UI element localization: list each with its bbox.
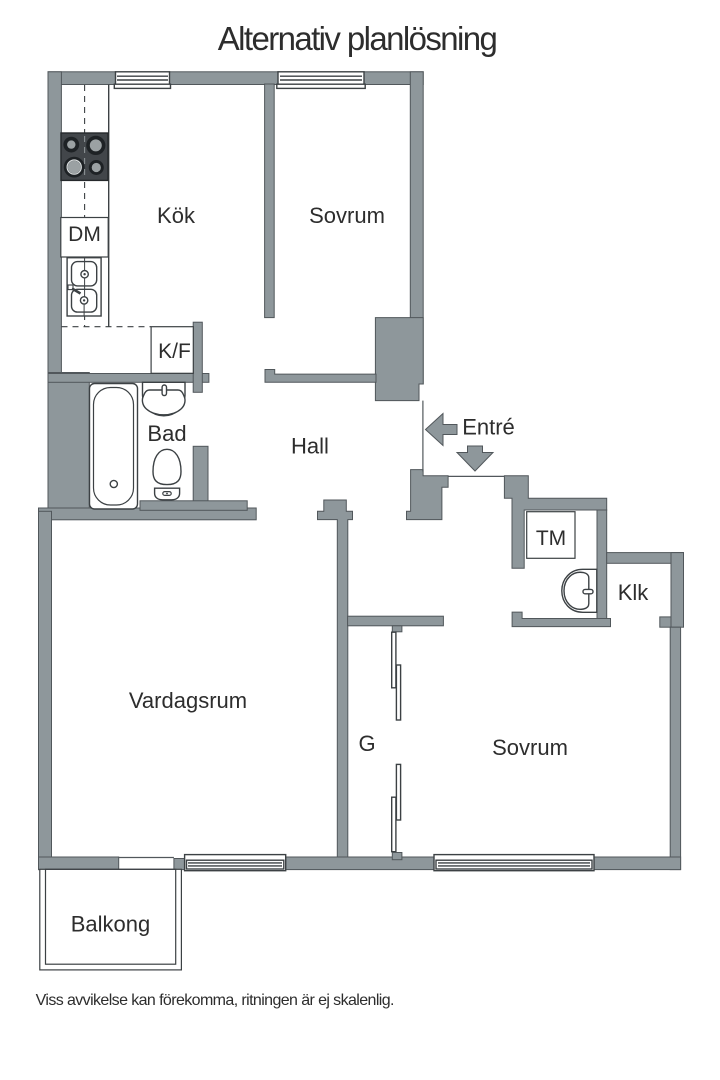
svg-text:G: G [358, 731, 375, 756]
svg-text:Entré: Entré [462, 415, 515, 440]
svg-text:K/F: K/F [158, 340, 191, 363]
svg-text:Sovrum: Sovrum [492, 735, 568, 760]
svg-text:Vardagsrum: Vardagsrum [129, 688, 247, 713]
svg-text:Alternativ planlösning: Alternativ planlösning [218, 20, 497, 57]
svg-text:DM: DM [68, 223, 101, 246]
svg-text:Klk: Klk [618, 580, 650, 605]
svg-text:Balkong: Balkong [71, 912, 151, 937]
svg-text:Sovrum: Sovrum [309, 203, 385, 228]
svg-text:Kök: Kök [157, 203, 196, 228]
svg-text:Viss avvikelse kan förekomma,: Viss avvikelse kan förekomma, ritningen … [36, 992, 394, 1009]
svg-text:Hall: Hall [291, 434, 329, 459]
svg-text:TM: TM [536, 527, 566, 550]
svg-text:Bad: Bad [147, 421, 186, 446]
